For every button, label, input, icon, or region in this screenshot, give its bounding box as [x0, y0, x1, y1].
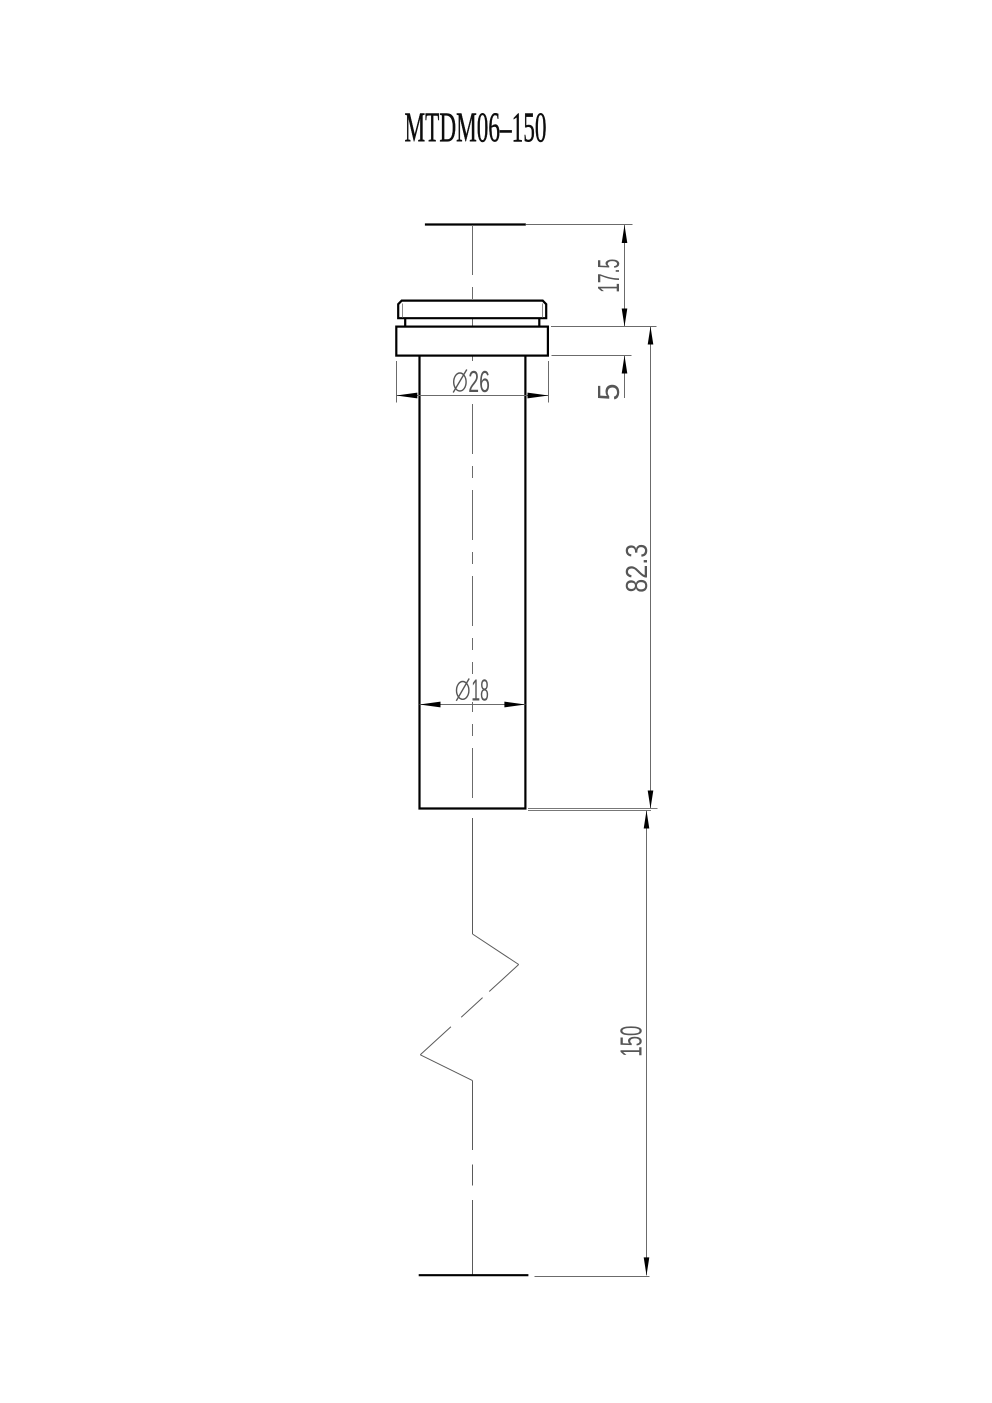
svg-text:MTDM06–150: MTDM06–150	[405, 106, 547, 152]
svg-text:150: 150	[613, 1026, 648, 1057]
svg-text:5: 5	[591, 383, 626, 400]
svg-text:17.5: 17.5	[591, 259, 626, 293]
svg-text:26: 26	[468, 364, 490, 399]
svg-text:18: 18	[471, 673, 488, 708]
svg-text:82.3: 82.3	[619, 544, 654, 593]
